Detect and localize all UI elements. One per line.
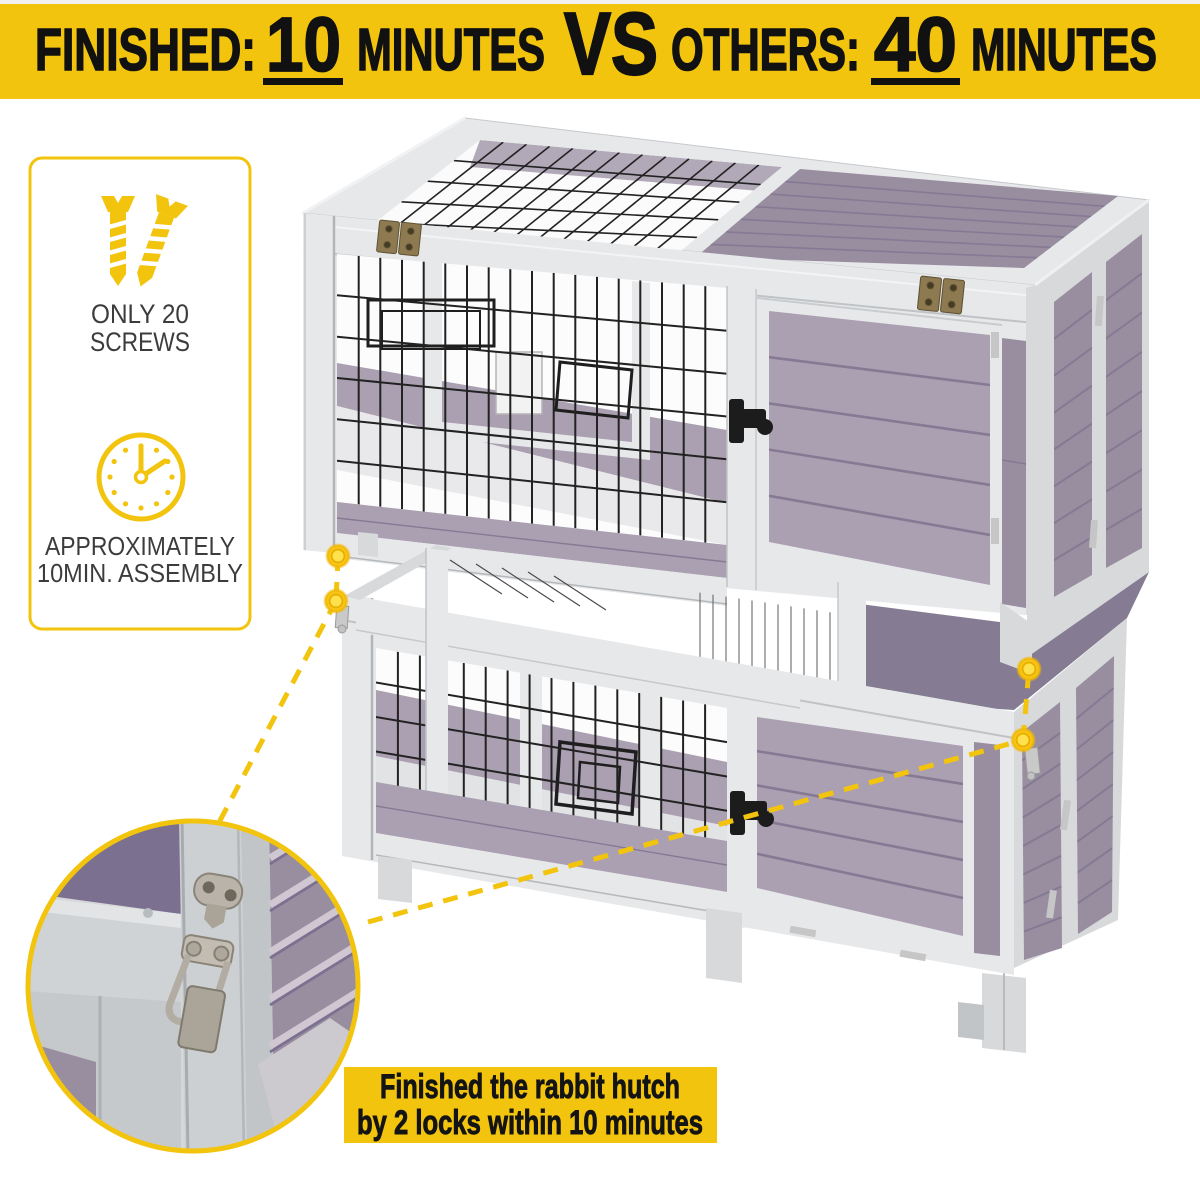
svg-text:MINUTES: MINUTES bbox=[971, 17, 1157, 83]
svg-text:10: 10 bbox=[266, 2, 341, 88]
svg-text:MINUTES: MINUTES bbox=[357, 17, 545, 83]
svg-text:FINISHED:: FINISHED: bbox=[35, 17, 256, 83]
svg-text:OTHERS:: OTHERS: bbox=[671, 17, 860, 83]
svg-text:10MIN. ASSEMBLY: 10MIN. ASSEMBLY bbox=[37, 558, 243, 588]
svg-text:Finished the rabbit hutch: Finished the rabbit hutch bbox=[380, 1068, 680, 1106]
svg-text:VS: VS bbox=[564, 0, 658, 93]
svg-text:SCREWS: SCREWS bbox=[90, 327, 190, 357]
svg-text:40: 40 bbox=[874, 2, 957, 88]
svg-text:APPROXIMATELY: APPROXIMATELY bbox=[45, 531, 235, 561]
svg-text:ONLY 20: ONLY 20 bbox=[91, 299, 189, 329]
svg-text:by 2 locks within 10 minutes: by 2 locks within 10 minutes bbox=[357, 1104, 703, 1142]
